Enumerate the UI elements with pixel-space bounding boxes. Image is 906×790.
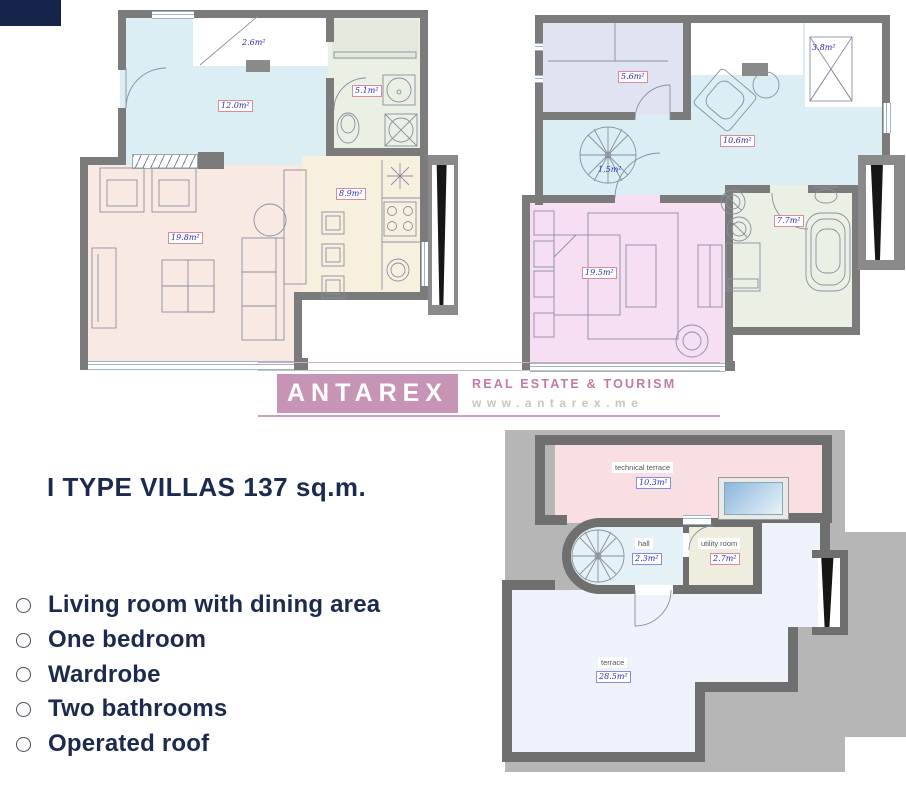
area-label-first-stairs: 3.8m² [810, 43, 838, 53]
brand-logo-block: ANTAREX [277, 374, 458, 413]
feature-label: Two bathrooms [48, 695, 227, 723]
area-label-roof-hall: 2.3m² [632, 553, 662, 565]
floor-plan-roof: technical terrace 10.3m² hall 2.3m² util… [500, 430, 906, 775]
room-name-technical-terrace: technical terrace [612, 462, 673, 473]
feature-item: Wardrobe [16, 657, 380, 692]
floor-plan-first: 5.6m² 3.8m² 10.6m² 1.5m² 19.5m² 7.7m² [520, 15, 905, 375]
area-label-ground-stairs: 2.6m² [240, 38, 268, 48]
feature-label: One bedroom [48, 626, 206, 654]
bullet-circle-icon [16, 667, 31, 682]
room-name-utility: utility room [698, 538, 740, 549]
floor-plan-ground: 2.6m² 12.0m² 5.1m² 8.9m² 19.8m² [80, 10, 458, 370]
area-label-first-wardrobe: 5.6m² [618, 71, 648, 83]
feature-item: Two bathrooms [16, 692, 380, 727]
area-label-first-hall: 10.6m² [720, 135, 755, 147]
area-label-ground-kitchen: 8.9m² [336, 188, 366, 200]
feature-item: Operated roof [16, 727, 380, 762]
area-label-roof-technical: 10.3m² [636, 477, 671, 489]
feature-label: Operated roof [48, 730, 209, 758]
area-label-ground-living: 19.8m² [168, 232, 203, 244]
area-label-ground-hall: 12.0m² [218, 100, 253, 112]
area-label-ground-bathroom: 5.1m² [352, 85, 382, 97]
feature-label: Wardrobe [48, 661, 161, 689]
feature-item: Living room with dining area [16, 588, 380, 623]
brand-name: ANTAREX [287, 379, 448, 407]
ground-furniture [80, 10, 458, 370]
first-furniture [520, 15, 905, 375]
room-name-roof-hall: hall [635, 538, 653, 549]
room-name-terrace: terrace [598, 657, 627, 668]
feature-label: Living room with dining area [48, 591, 380, 619]
area-label-first-bedroom: 19.5m² [582, 267, 617, 279]
area-label-first-bathroom: 7.7m² [774, 215, 804, 227]
brand-tagline: REAL ESTATE & TOURISM [472, 377, 712, 391]
bullet-circle-icon [16, 633, 31, 648]
corner-accent-block [0, 0, 61, 26]
brand-url[interactable]: www.antarex.me [472, 396, 712, 410]
bullet-circle-icon [16, 737, 31, 752]
feature-item: One bedroom [16, 623, 380, 658]
area-label-terrace: 28.5m² [596, 671, 631, 683]
bullet-circle-icon [16, 702, 31, 717]
feature-list: Living room with dining area One bedroom… [16, 588, 380, 761]
page-title: I TYPE VILLAS 137 sq.m. [47, 472, 366, 503]
real-estate-flyer: { "brand": { "name": "ANTAREX", "tagline… [0, 0, 906, 790]
roof-furniture [500, 430, 906, 775]
area-label-first-spiral: 1.5m² [596, 165, 624, 175]
bullet-circle-icon [16, 598, 31, 613]
area-label-utility: 2.7m² [710, 553, 740, 565]
divider-line-pink-bottom [258, 415, 720, 417]
